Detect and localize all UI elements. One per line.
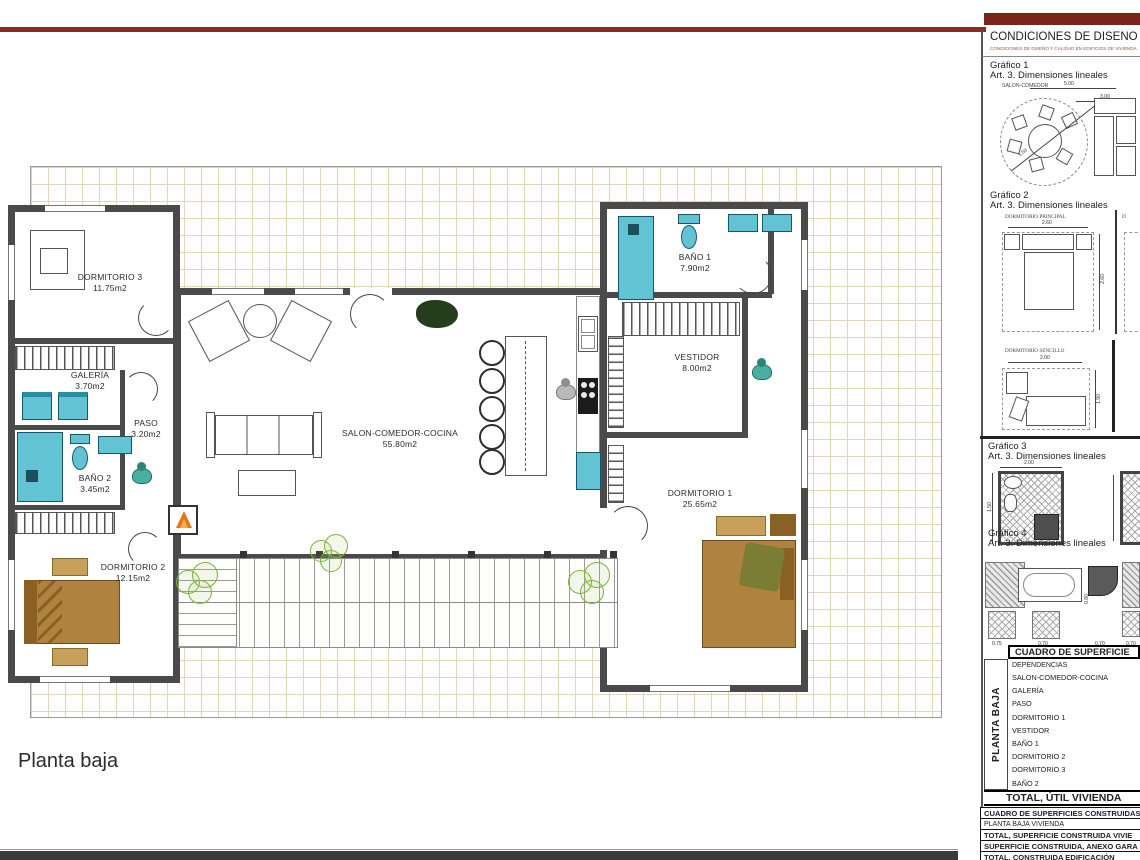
- washing-machine: [22, 392, 52, 420]
- wall-vestidor-dorm1: [607, 432, 747, 438]
- table-row: DORMITORIO 1: [1008, 711, 1140, 725]
- sofa-sketch: [1116, 146, 1136, 176]
- plant: [568, 562, 616, 606]
- room-label-dormitorio-1: DORMITORIO 125.65m2: [648, 488, 752, 510]
- grafico4-subtitle: Art. 3. Dimensiones lineales: [988, 538, 1106, 549]
- plan-caption: Planta baja: [18, 750, 118, 773]
- room-label-salon: SALON-COMEDOR-COCINA55.80m2: [320, 428, 480, 450]
- dim-line: [1008, 227, 1088, 228]
- sofa: [215, 415, 313, 455]
- deck-mid-line: [178, 602, 618, 603]
- corner-shower-sketch: [1088, 566, 1118, 596]
- bed-sketch: [1024, 252, 1074, 310]
- drawing-sheet: DORMITORIO 311.75m2 GALERÍA3.70m2 PASO3.…: [0, 0, 1140, 860]
- headboard-sketch: [1022, 234, 1074, 250]
- sofa-armrest: [206, 412, 215, 458]
- person-figure: [556, 378, 574, 398]
- panel-divider: [981, 30, 983, 860]
- panel-header-bar: [984, 13, 1140, 25]
- table-row: GALERÍA: [1008, 684, 1140, 698]
- nightstand-sketch: [1076, 234, 1092, 250]
- plant: [310, 534, 354, 574]
- toilet-bano2: [70, 434, 90, 444]
- table-row: BAÑO 1: [1008, 737, 1140, 751]
- shower-sketch: [1034, 514, 1059, 540]
- toilet-bowl-bano2: [72, 446, 88, 470]
- deck-post: [240, 551, 247, 558]
- door-arc-dorm1: [608, 506, 648, 546]
- burner: [589, 382, 595, 388]
- window-dorm1-east-3: [801, 560, 808, 630]
- wood-deck: [178, 558, 618, 648]
- nightstand-dorm1: [770, 514, 796, 536]
- clearance-block: [1032, 611, 1060, 639]
- bar-stool: [479, 396, 505, 422]
- bar-stool: [479, 449, 505, 475]
- section-vrule: [1112, 340, 1115, 432]
- sofa-sketch: [1116, 116, 1136, 144]
- single-bed-sketch: [1026, 396, 1086, 426]
- burner: [581, 382, 587, 388]
- shower-drain: [628, 224, 639, 235]
- clearance-block: [988, 611, 1016, 639]
- dim-value: 1.90: [1096, 394, 1102, 404]
- grafico2-divider: [1115, 210, 1117, 334]
- burner: [581, 392, 587, 398]
- bed-headboard: [24, 580, 37, 644]
- coffee-table: [238, 470, 296, 496]
- closet-vestidor: [622, 302, 740, 336]
- kitchen-island: [505, 336, 547, 476]
- door-gap-dorm1: [600, 508, 607, 550]
- table-row: PASO: [1008, 697, 1140, 711]
- table-row: DORMITORIO 2: [1008, 750, 1140, 764]
- dim-value: 2.00: [1024, 460, 1034, 466]
- grafico2-room-label: DORMITORIO PRINCIPAL: [1005, 214, 1066, 220]
- table-row: DORMITORIO 3: [1008, 763, 1140, 777]
- wardrobe-sketch: [1006, 372, 1028, 394]
- partial-sketch: [1124, 232, 1140, 332]
- wall-bano2-dorm2: [15, 505, 125, 510]
- shower-drain: [26, 470, 38, 482]
- window-dorm3-north: [45, 205, 105, 212]
- surface-total-row: TOTAL, ÚTIL VIVIENDA: [984, 790, 1140, 806]
- dim-value: 2.60: [1100, 274, 1106, 284]
- bathtub-inner: [1023, 573, 1075, 597]
- nightstand-sketch: [1004, 234, 1020, 250]
- door-arc-dorm3: [138, 300, 174, 336]
- dim-line: [1000, 467, 1062, 468]
- sink-double-bano1: [728, 214, 758, 232]
- window-dorm2-west: [8, 560, 15, 630]
- built-table-row: TOTAL, CONSTRUIDA EDIFICACIÓN: [980, 851, 1140, 860]
- closet-dormitorio-2: [15, 512, 115, 534]
- dim-value: 1.50: [987, 502, 993, 512]
- window-salon-north-1: [212, 288, 264, 295]
- sink-basin: [581, 319, 595, 333]
- deck-post: [610, 551, 617, 558]
- closet-vestidor-west: [608, 336, 624, 428]
- surface-table-side: PLANTA BAJA: [984, 659, 1008, 790]
- room-label-paso: PASO3.20m2: [118, 418, 174, 440]
- closet-dormitorio-3: [15, 346, 115, 370]
- room-label-galeria: GALERÍA3.70m2: [40, 370, 140, 392]
- door-arc-dorm2: [128, 532, 162, 566]
- sink-double-bano1: [762, 214, 792, 232]
- washbasin-sketch: [1004, 476, 1022, 489]
- toilet-bano1: [678, 214, 700, 224]
- dimension-bar: [0, 851, 958, 860]
- section-hrule: [980, 436, 1140, 439]
- closet-dorm1-west: [608, 445, 624, 503]
- grafico2-subtitle: Art. 3. Dimensiones lineales: [990, 200, 1108, 211]
- table-row: VESTIDOR: [1008, 724, 1140, 738]
- bar-stool: [479, 368, 505, 394]
- sencillo-label: DORMITORIO SENCILLO: [1005, 348, 1064, 354]
- side-label: PLANTA BAJA: [991, 687, 1002, 762]
- dim-line: [1030, 88, 1116, 89]
- grafico2-partial-label: D: [1122, 214, 1126, 220]
- room-label-bano-2: BAÑO 23.45m2: [55, 473, 135, 495]
- sofa-sketch: [1094, 98, 1136, 114]
- toilet-sketch: [1004, 494, 1017, 512]
- grafico1-subtitle: Art. 3. Dimensiones lineales: [990, 70, 1108, 81]
- bar-stool: [479, 340, 505, 366]
- window-salon-north-2: [295, 288, 343, 295]
- nightstand-dorm2: [52, 648, 88, 666]
- room-label-dormitorio-3: DORMITORIO 311.75m2: [60, 272, 160, 294]
- burner: [589, 392, 595, 398]
- grafico3-subtitle: Art. 3. Dimensiones lineales: [988, 451, 1106, 462]
- panel-header-rule: [982, 56, 1140, 57]
- bench-dorm1: [716, 516, 766, 536]
- person-figure: [752, 358, 770, 378]
- fridge: [576, 452, 601, 490]
- desk-chair: [40, 248, 68, 274]
- deck-post: [544, 551, 551, 558]
- deck-post: [468, 551, 475, 558]
- window-dorm1-south: [650, 685, 730, 692]
- island-dash: [525, 341, 526, 471]
- window-dorm2-south: [40, 676, 110, 683]
- table-row: SALON-COMEDOR-COCINA: [1008, 671, 1140, 685]
- dim-value: 0.75: [992, 641, 1002, 647]
- wall-vestidor-east: [742, 298, 748, 438]
- window-dorm1-east-2: [801, 430, 808, 488]
- tile-block: [1122, 562, 1140, 608]
- wall-galeria-bano2: [15, 425, 125, 430]
- flame-inner-icon: [180, 519, 188, 528]
- table-row: BAÑO 2: [1008, 777, 1140, 791]
- window-dorm3-west: [8, 245, 15, 300]
- washing-machine: [58, 392, 88, 420]
- surface-table-title: CUADRO DE SUPERFICIE: [1008, 645, 1140, 659]
- panel-subtitle: CONDICIONES DE DISEÑO Y CALIDAD EN EDIFI…: [990, 46, 1138, 51]
- dimension-strip: [0, 849, 958, 850]
- bed-fold: [38, 581, 62, 643]
- dim-line-v: [1113, 475, 1114, 541]
- planter-dark: [416, 300, 458, 328]
- toilet-bowl-bano1: [681, 225, 697, 249]
- sink-basin: [581, 335, 595, 349]
- deck-post: [392, 551, 399, 558]
- door-arc-vestidor: [734, 256, 772, 294]
- dim-value: 2.60: [1042, 220, 1052, 226]
- dim-value: 2.00: [1040, 355, 1050, 361]
- room-label-vestidor: VESTIDOR8.00m2: [652, 352, 742, 374]
- dim-value: 5.00: [1064, 81, 1074, 87]
- room-label-bano-1: BAÑO 17.90m2: [660, 252, 730, 274]
- dim-line: [1008, 362, 1082, 363]
- top-rule: [0, 27, 986, 32]
- room-label-dormitorio-2: DORMITORIO 212.15m2: [78, 562, 188, 584]
- side-table: [243, 304, 277, 338]
- wall-dorm3-galeria: [15, 338, 173, 344]
- panel-title: CONDICIONES DE DISEÑO y C: [990, 31, 1140, 43]
- bed-blanket: [738, 542, 785, 592]
- window-dorm1-east-1: [801, 240, 808, 290]
- bar-stool: [479, 424, 505, 450]
- bathroom-sketch-partial: [1120, 471, 1140, 545]
- door-arc-salon: [350, 294, 390, 334]
- sofa-sketch: [1094, 116, 1114, 176]
- clearance-block: [1122, 611, 1140, 637]
